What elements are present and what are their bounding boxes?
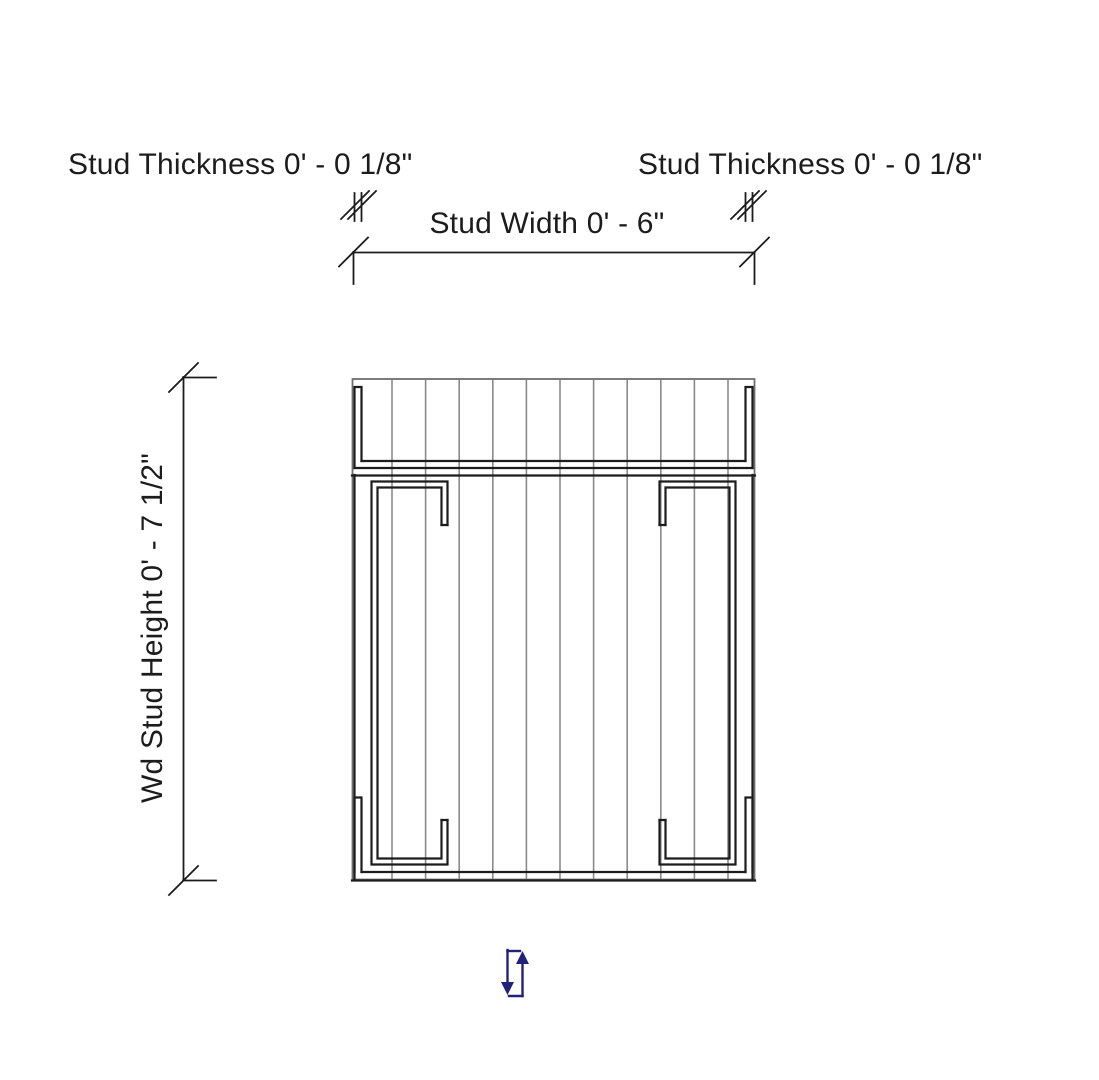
dimension-stud-thickness-left [341, 191, 376, 221]
left-stud-channel [372, 482, 448, 865]
dimension-stud-thickness-right [731, 191, 766, 221]
stud-thickness-left-label[interactable]: Stud Thickness 0' - 0 1/8" [68, 150, 413, 180]
dimension-stud-width [339, 238, 769, 285]
stud-thickness-right-label[interactable]: Stud Thickness 0' - 0 1/8" [638, 150, 983, 180]
hatch-lines [392, 380, 728, 879]
wd-stud-height-label[interactable]: Wd Stud Height 0' - 7 1/2" [138, 453, 168, 803]
dimension-wd-stud-height [169, 363, 216, 895]
top-track [355, 387, 753, 468]
flip-up-down-arrows-icon[interactable] [501, 950, 529, 996]
stud-width-label[interactable]: Stud Width 0' - 6" [429, 209, 664, 239]
drawing-canvas: Stud Thickness 0' - 0 1/8" Stud Thicknes… [0, 0, 1099, 1080]
right-stud-channel [660, 482, 736, 865]
